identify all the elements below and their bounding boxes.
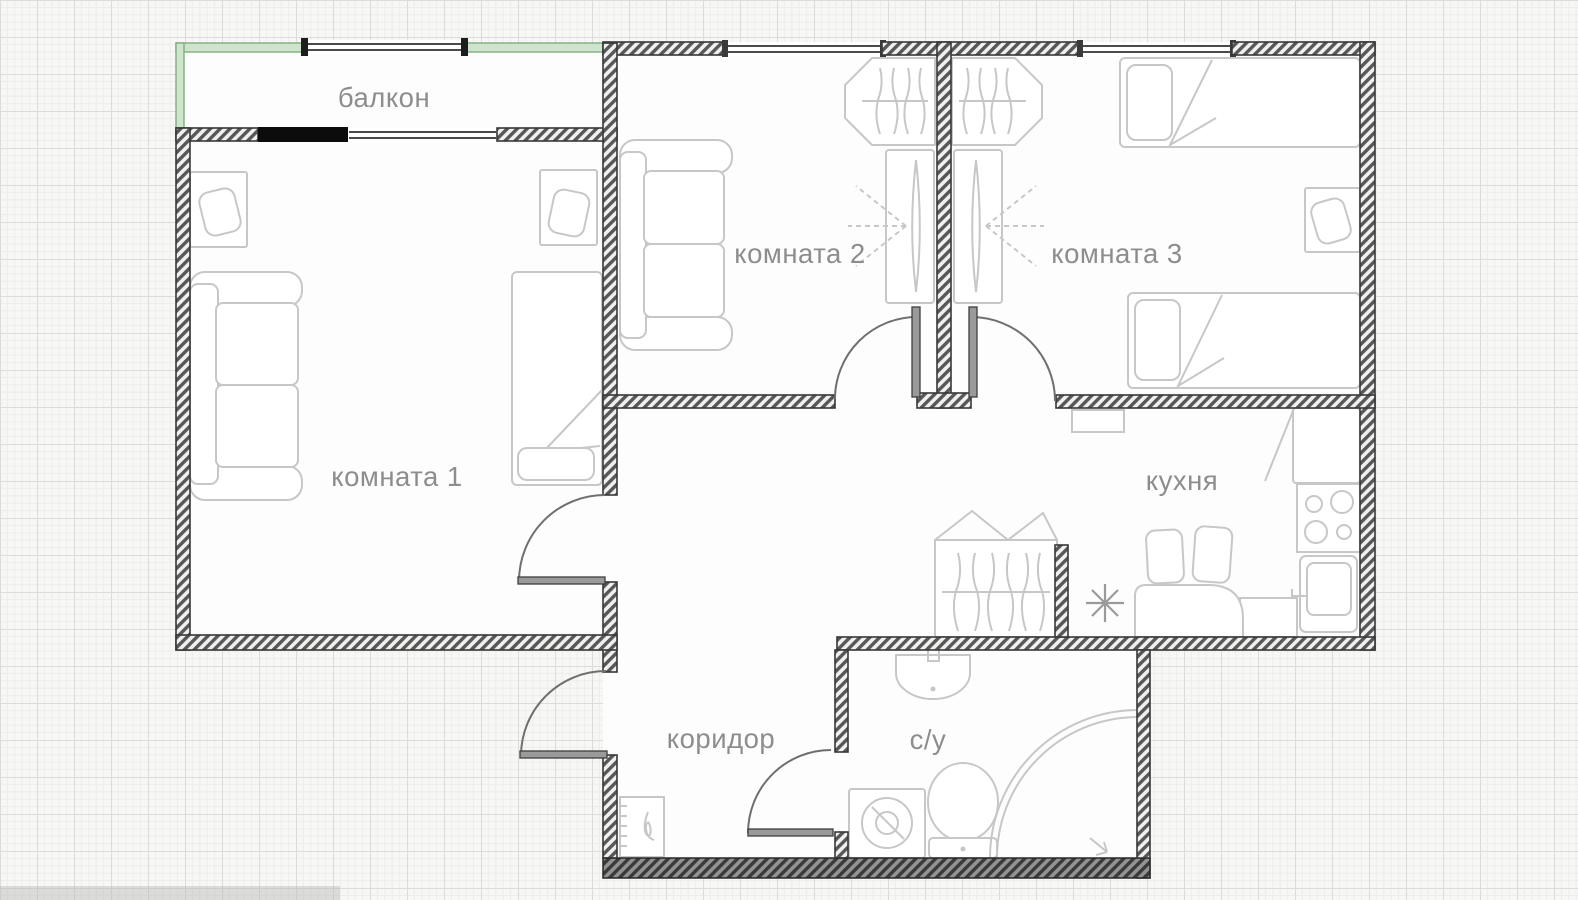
door-pier [917,393,971,408]
bottom-outer-wall [603,858,1150,878]
kitchen-stub-wall [1055,545,1068,637]
dining-table [1135,585,1243,637]
kitchen-sink [1292,556,1357,632]
room1-room2-divider-wall [603,43,617,495]
right-outer-wall [1360,42,1375,650]
room3-top-wall-right [1232,42,1375,55]
room2-top-wall-left [603,42,726,55]
corridor-label: коридор [667,723,775,754]
single-bed [1120,58,1360,147]
solid-wall-segment [258,127,348,142]
washing-machine [849,789,925,858]
desk-with-chair [190,172,247,247]
left-outer-wall [176,128,190,650]
room1-label: комната 1 [331,461,462,492]
kitchen-label: кухня [1146,465,1218,496]
shoe-cabinet [620,797,664,857]
bed [512,272,602,485]
floor-plan-screenshot: балкон комната 1 комната 2 комната 3 кух… [0,0,1578,900]
corridor-left-wall-upper [603,582,617,672]
photo-smudge [0,886,340,900]
stove [1297,484,1360,552]
room3-window [1077,40,1236,57]
bathroom-kitchen-wall [837,637,1375,650]
kitchen-counter [1240,598,1297,637]
balcony-left-wall [176,43,184,135]
room1-top-wall-right [497,128,617,141]
sofa [190,272,302,500]
bathroom-right-wall [1137,650,1150,878]
kitchen-top-wall [1056,395,1375,408]
corridor-left-wall-lower [603,755,617,858]
stool [1192,526,1233,583]
room1-bottom-wall [176,635,617,650]
bathroom-left-wall-lower [835,832,848,858]
room2-label: комната 2 [734,238,865,269]
wardrobe [952,58,1042,145]
wash-basin [896,647,970,699]
room2-window [722,40,886,57]
kitchen-shelf [1072,410,1124,432]
room3-label: комната 3 [1051,238,1182,269]
room1-window [348,128,497,141]
sofa [620,140,732,350]
toilet [928,763,998,858]
bathroom-left-wall-upper [835,650,848,752]
desk-with-chair [540,170,597,245]
wardrobe [845,58,935,145]
desk-with-chair [1305,188,1360,252]
bathroom-label: с/у [910,724,947,755]
room2-room3-divider-wall [937,42,951,408]
floor-plan: балкон комната 1 комната 2 комната 3 кух… [0,0,1578,900]
hall-top-wall [603,395,835,408]
balcony-window [301,38,468,56]
stool [1146,529,1185,584]
balcony-label: балкон [338,82,430,113]
single-bed [1128,293,1360,388]
rooms-top-wall-center [882,42,1081,55]
